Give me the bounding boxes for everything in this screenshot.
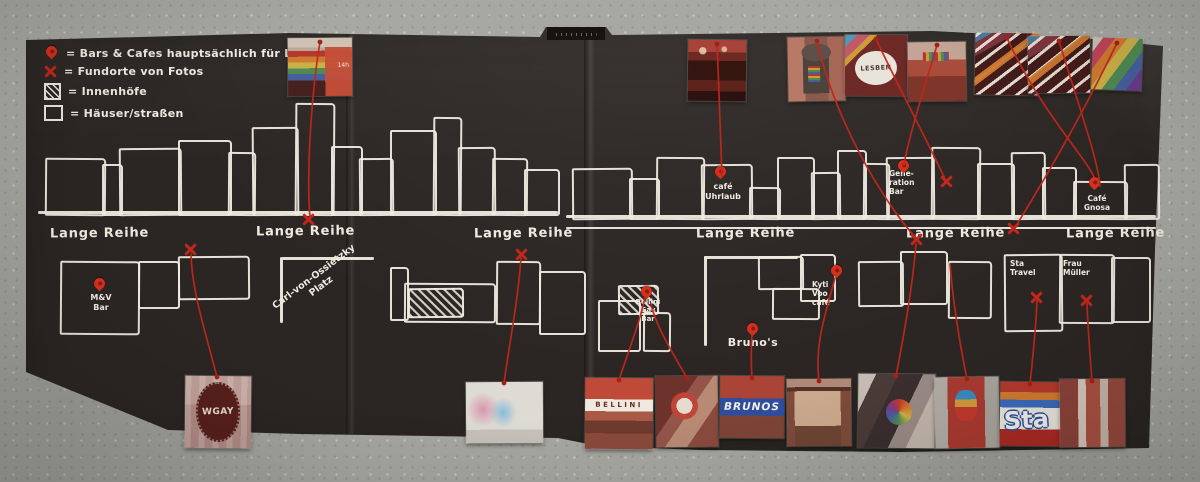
photos: 14h LESBEN WGAY BELLINI BRUNOS Sta bbox=[0, 0, 1200, 482]
photo-advertising-pillar bbox=[935, 377, 1000, 449]
photo-caption: Sta bbox=[1003, 405, 1049, 436]
photo-caption: BELLINI bbox=[585, 401, 653, 410]
photo-sticker-bag bbox=[656, 376, 719, 448]
photo-of-handmade-map: = Bars & Cafes hauptsächlich für LGBTQ+ … bbox=[0, 0, 1200, 482]
photo-bar-interior bbox=[688, 40, 747, 102]
photo-shop-window bbox=[787, 379, 852, 447]
photo-caption: 14h bbox=[338, 62, 349, 69]
lesben-sticker: LESBEN bbox=[854, 50, 897, 86]
photo-rainbow-circle-door bbox=[858, 374, 936, 449]
wgay-badge: WGAY bbox=[195, 381, 240, 442]
photo-wgay-logo: WGAY bbox=[185, 376, 252, 449]
photo-brunos-sign: BRUNOS bbox=[720, 376, 784, 438]
photo-rainbow-flag-shop: 14h bbox=[288, 38, 353, 97]
photo-sta-travel-flag: Sta bbox=[1000, 382, 1062, 447]
photo-pale-poster bbox=[466, 382, 543, 444]
photo-red-door bbox=[1060, 379, 1126, 448]
photo-lesben-sticker: LESBEN bbox=[845, 35, 908, 97]
rainbow-sticker bbox=[886, 399, 912, 425]
pillar-sticker bbox=[955, 390, 977, 422]
photo-rainbow-bollard bbox=[787, 37, 845, 102]
photo-storefront-flag bbox=[908, 42, 967, 102]
photo-rainbow-flag-corner bbox=[1091, 37, 1143, 91]
photo-caption: BRUNOS bbox=[720, 401, 784, 413]
photo-bellini-storefront: BELLINI bbox=[585, 378, 654, 450]
photo-menu-board-2 bbox=[1028, 36, 1091, 94]
